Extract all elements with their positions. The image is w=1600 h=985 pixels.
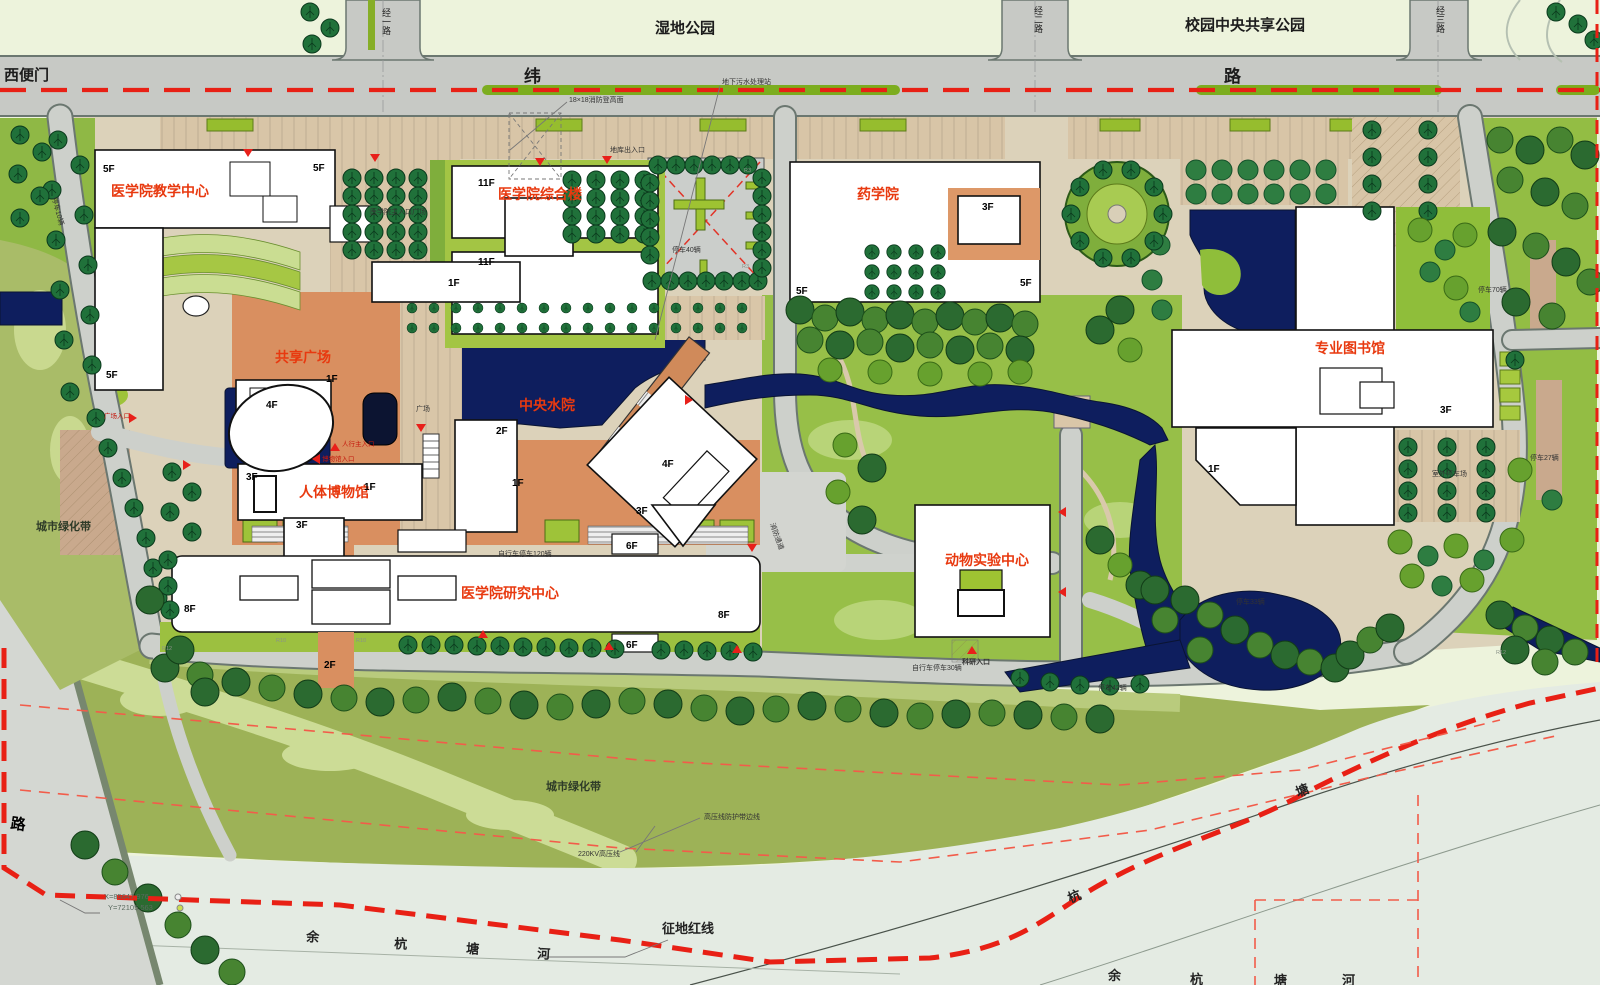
central-park-label: 校园中央共享公园: [1185, 16, 1305, 34]
jing1-road-label: 经一路: [381, 7, 391, 36]
floor-label: 3F: [246, 472, 258, 483]
floor-label: 6F: [626, 541, 638, 552]
teaching-center-west-wing: [95, 228, 163, 390]
floor-label: 1F: [326, 374, 338, 385]
plaza-label: 共享广场: [275, 349, 331, 365]
floor-label: 11F: [478, 257, 495, 268]
river2-char-yu: 余: [1107, 968, 1122, 983]
parking40-note: 停车40辆: [672, 245, 701, 254]
west-pond: [0, 292, 62, 325]
floor-label: 3F: [296, 520, 308, 531]
radius-label: R10: [356, 638, 366, 644]
green-belt-label-west: 城市绿化带: [36, 519, 91, 533]
plaza-small-note: 广场: [416, 404, 430, 413]
research-core-1: [312, 560, 390, 588]
research-north-bar: [398, 530, 466, 552]
research-core-3: [240, 576, 298, 600]
garage-entry-note: 地库出入口: [610, 145, 645, 154]
floor-label: 4F: [662, 459, 674, 470]
complex-connector: [505, 198, 573, 256]
research-label: 医学院研究中心: [461, 585, 559, 601]
parking33-note: 停车33辆: [1236, 597, 1265, 606]
survey-point-1: [175, 894, 181, 900]
parking70-note: 停车70辆: [1478, 285, 1507, 294]
green-belt-label-south: 城市绿化带: [546, 779, 601, 793]
floor-label: 3F: [636, 506, 648, 517]
teaching-roof-box-1: [230, 162, 270, 196]
floor-label: 5F: [1020, 278, 1032, 289]
floor-label: 3F: [982, 202, 994, 213]
animal-core: [958, 590, 1004, 616]
water-court-label: 中央水院: [519, 397, 575, 413]
river-char-tang: 塘: [466, 941, 480, 957]
floor-label: 5F: [313, 163, 325, 174]
floor-label: 1F: [448, 278, 460, 289]
museum-south-box: [284, 518, 344, 558]
ped-entry-note: 人行主入口: [342, 439, 375, 448]
floor-label: 4F: [266, 400, 278, 411]
teaching-roof-box-2: [263, 196, 297, 222]
road-lu-char: 路: [1224, 66, 1242, 86]
floor-label: 3F: [1440, 405, 1452, 416]
red-line-label: 征地红线: [662, 921, 714, 936]
museum-label: 人体博物馆: [299, 484, 369, 500]
pharmacy-label: 药学院: [857, 186, 899, 202]
floor-label: 2F: [324, 660, 336, 671]
floor-label: 2F: [496, 426, 508, 437]
museum-entry-note: 博物馆入口: [322, 454, 355, 463]
parking42-note: 停车42辆: [1098, 683, 1127, 692]
outdoor-parking-note: 室外停车场: [1432, 469, 1467, 478]
radius-label: R12: [162, 646, 172, 652]
river2-char-he: 河: [1342, 973, 1355, 985]
main-entry-plaza-note: 医学院主入口广场: [370, 207, 426, 216]
fire-ladder-note: 18×18消防登高面: [569, 95, 624, 104]
floor-label: 1F: [512, 478, 524, 489]
floor-label: 1F: [1208, 464, 1220, 475]
river-char-yu: 余: [305, 929, 321, 945]
animal-center-label: 动物实验中心: [945, 552, 1029, 568]
radius-label: R12: [1496, 650, 1506, 656]
library-label: 专业图书馆: [1315, 340, 1385, 356]
bike30-note: 自行车停车30辆: [912, 663, 962, 672]
hv-edge-note: 高压线防护带边线: [704, 812, 760, 821]
complex-west-bar: [372, 262, 520, 302]
site-plan: 湿地公园 校园中央共享公园 西便门 纬 路 经一路 经二路 经三路 路 城市绿化…: [0, 0, 1600, 985]
floor-label: 5F: [103, 164, 115, 175]
campus-master-plan-drawing: 湿地公园 校园中央共享公园 西便门 纬 路 经一路 经二路 经三路 路 城市绿化…: [0, 0, 1600, 985]
river2-char-hang: 杭: [1190, 972, 1203, 985]
survey-point-2: [177, 905, 183, 911]
water-court-2f-building: [455, 420, 517, 532]
floor-label: 8F: [718, 610, 730, 621]
animal-green-roof: [960, 570, 1002, 590]
jing2-road-label: 经二路: [1033, 5, 1043, 34]
parking27-note: 停车27辆: [1530, 453, 1559, 462]
coord-x: X=85647.976: [104, 892, 149, 901]
sewage-note: 地下污水处理站: [722, 77, 771, 86]
teaching-center-label: 医学院教学中心: [111, 183, 209, 199]
radius-label: R3: [742, 264, 749, 270]
black-reflecting-pool: [363, 393, 397, 445]
floor-label: 5F: [796, 286, 808, 297]
river-char-hang: 杭: [394, 936, 408, 952]
bike120-note: 自行车停车120辆: [498, 549, 552, 558]
floor-label: 5F: [106, 370, 118, 381]
library-core-2: [1360, 382, 1394, 408]
floor-label: 6F: [626, 640, 638, 651]
west-gate-label: 西便门: [4, 66, 49, 84]
research-core-4: [398, 576, 456, 600]
floor-label: 1F: [364, 482, 376, 493]
east-parking-hatch-2: [1536, 380, 1562, 500]
river2-char-tang: 塘: [1274, 973, 1287, 985]
hv-line-note: 220KV高压线: [578, 849, 620, 858]
research-core-2: [312, 590, 390, 624]
floor-label: 11F: [478, 178, 495, 189]
radius-label: R3: [744, 168, 751, 174]
plaza-entry-note: 广场入口: [104, 411, 130, 420]
radius-label: R10: [276, 638, 286, 644]
road-wei-char: 纬: [524, 66, 541, 86]
floor-label: 8F: [184, 604, 196, 615]
jing3-road-label: 经三路: [1435, 5, 1445, 34]
complex-label: 医学院综合楼: [498, 186, 582, 202]
wetland-park-label: 湿地公园: [655, 19, 715, 37]
coord-y: Y=72105.563: [108, 903, 153, 912]
research-entry-note: 科研入口: [962, 657, 990, 666]
river-char-he: 河: [537, 946, 551, 962]
